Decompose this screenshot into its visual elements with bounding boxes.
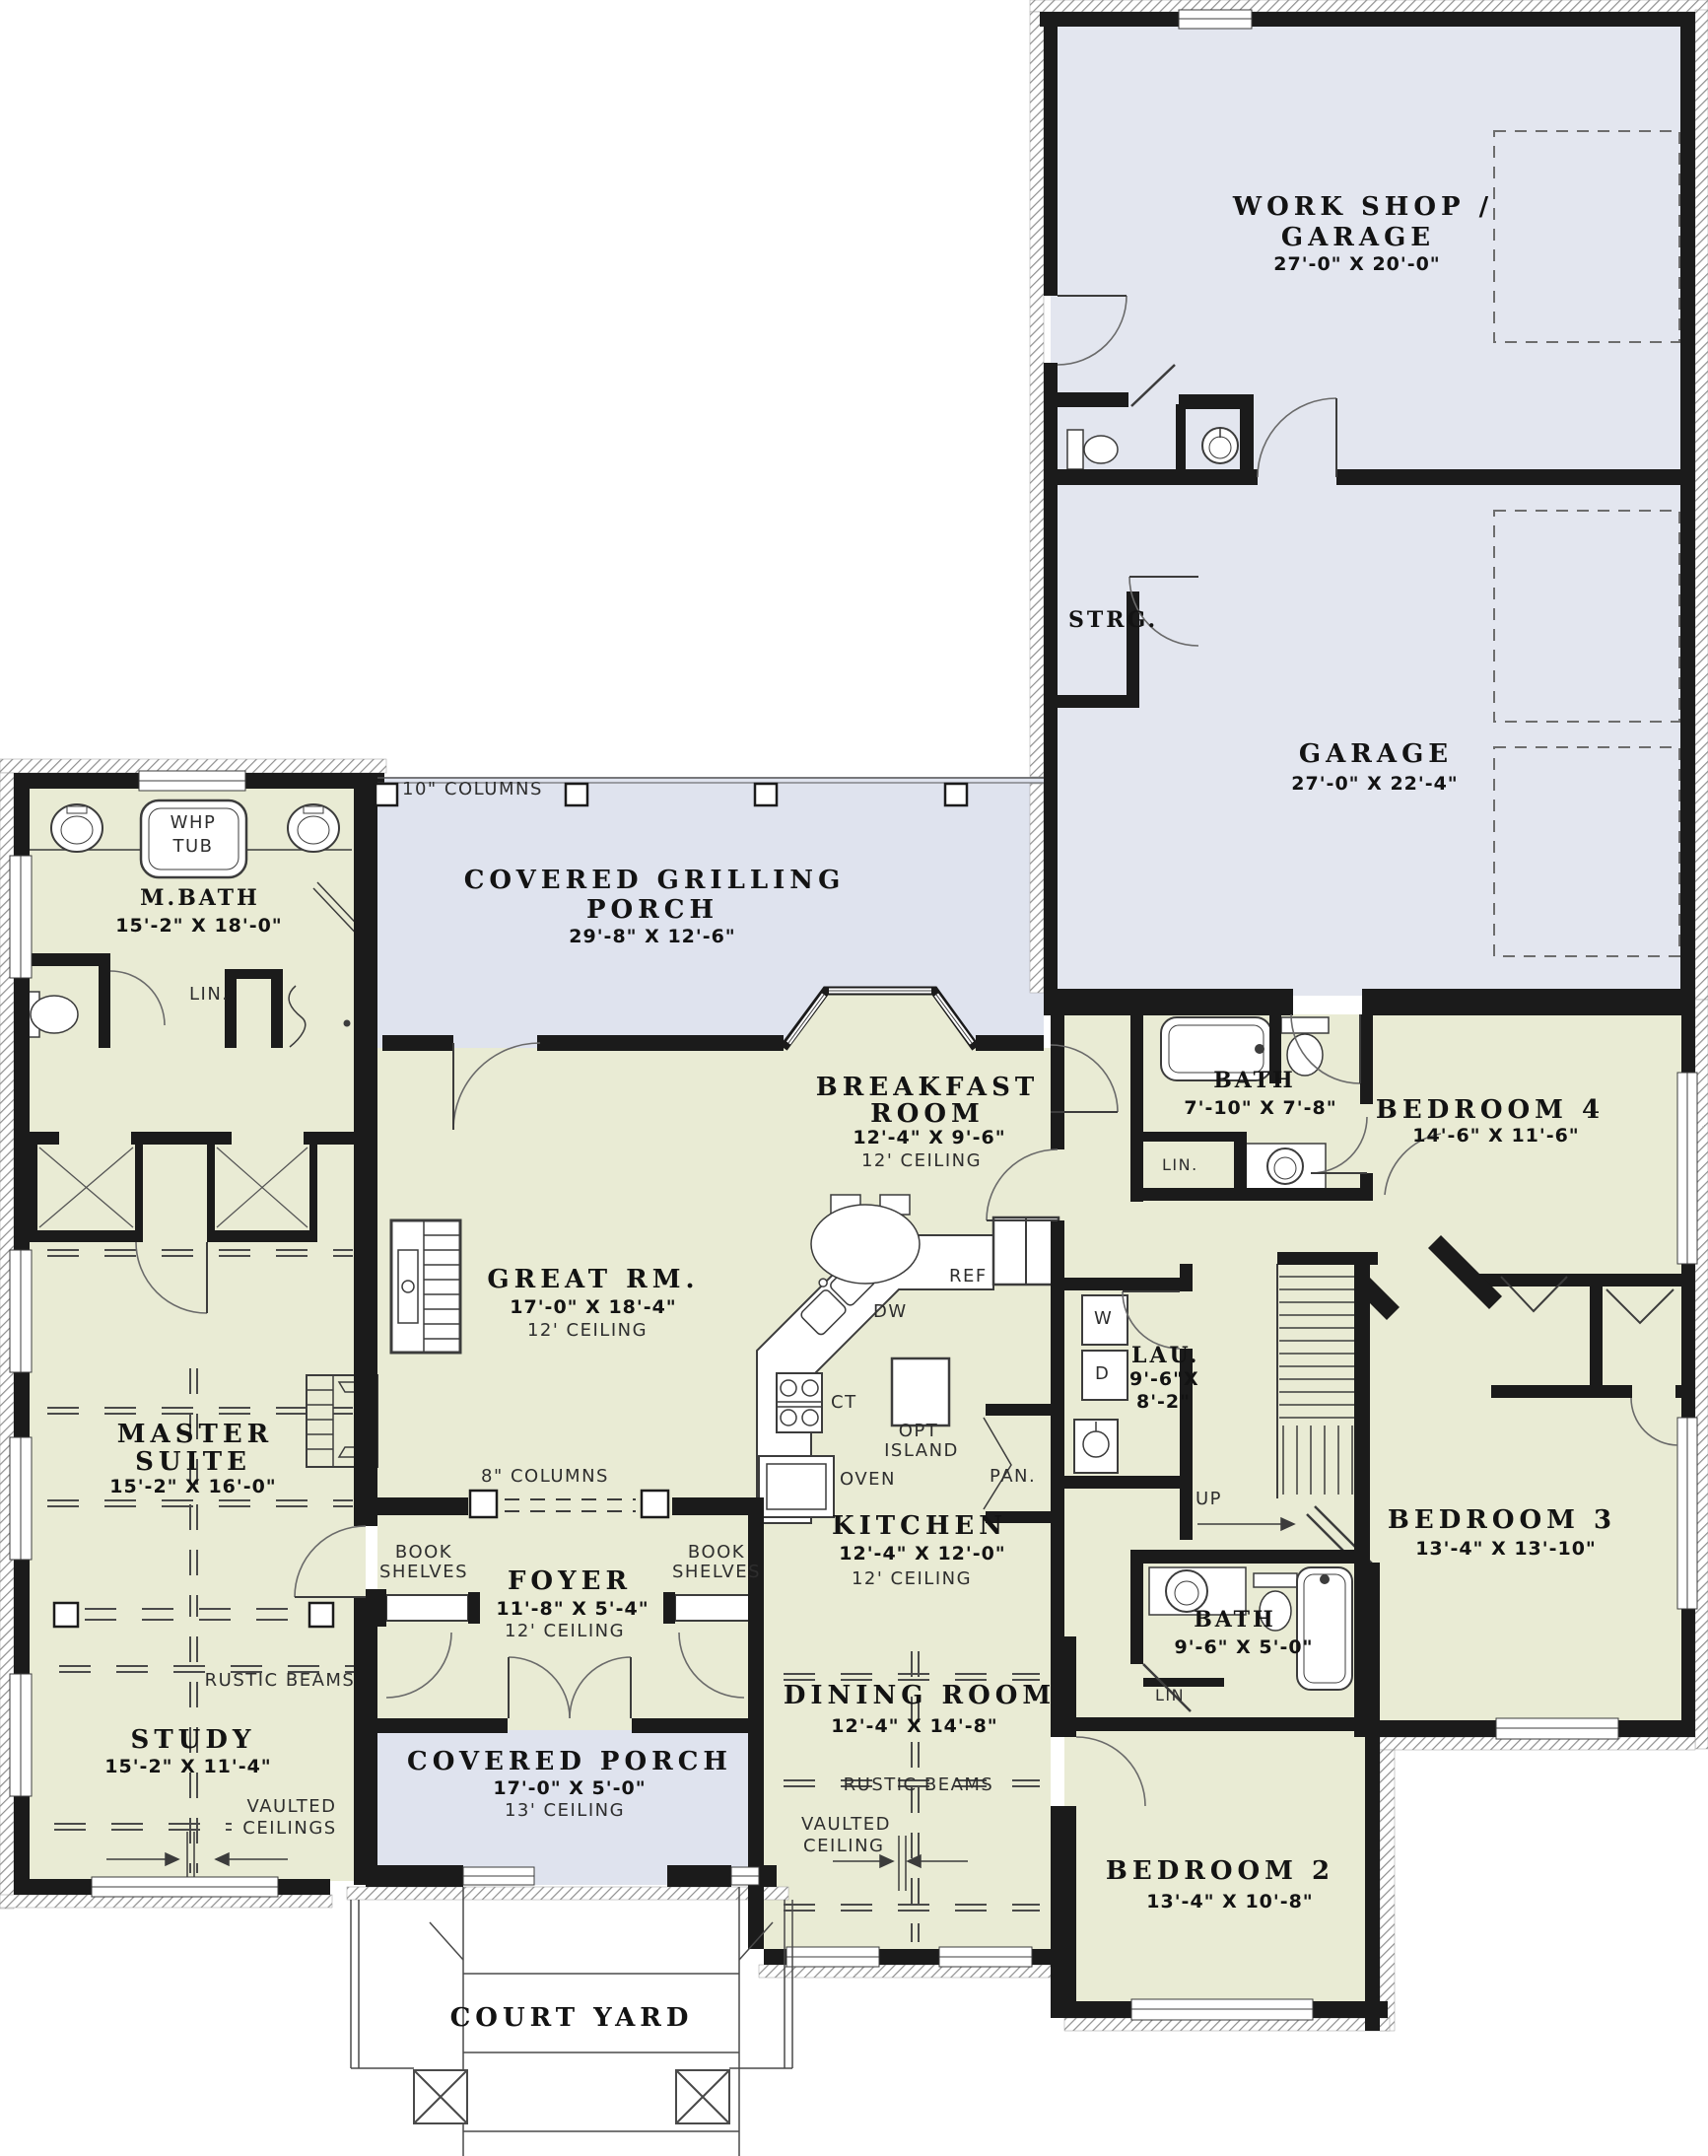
room-dims-laundry: 9'-6"X (1129, 1368, 1199, 1390)
up-note: UP (1196, 1489, 1222, 1509)
rustic-beams-note-dining: RUSTIC BEAMS (844, 1774, 994, 1795)
room-name-grilling-porch-2: PORCH (586, 895, 718, 925)
sink-icon (288, 804, 339, 852)
room-ceiling-foyer: 12' CEILING (505, 1621, 625, 1641)
room-name-study: STUDY (131, 1725, 256, 1755)
pantry-note: PAN. (990, 1466, 1036, 1487)
dw-note: DW (873, 1301, 908, 1322)
room-dims-grilling-porch: 29'-8" X 12'-6" (569, 926, 735, 947)
ref-note: REF (949, 1266, 988, 1287)
room-dims-mbath: 15'-2" X 18'-0" (115, 915, 282, 937)
room-dims-workshop: 27'-0" X 20'-0" (1273, 253, 1440, 275)
room-name-mbath: M.BATH (140, 885, 260, 911)
room-name-foyer: FOYER (508, 1566, 632, 1596)
vaulted-note-study-2: CEILINGS (242, 1818, 336, 1839)
whp-tub-note-2: TUB (172, 836, 213, 857)
vanity-sink (1245, 1144, 1326, 1189)
room-ceiling-porch: 13' CEILING (505, 1800, 625, 1821)
room-dims-garage: 27'-0" X 22'-4" (1291, 773, 1458, 795)
room-name-garage: GARAGE (1299, 739, 1453, 769)
room-name-bath4: BATH (1213, 1068, 1296, 1093)
room-ceiling-great: 12' CEILING (527, 1320, 648, 1341)
ct-note: CT (831, 1392, 857, 1413)
room-dims-bed4: 14'-6" X 11'-6" (1412, 1125, 1579, 1147)
bookshelves-note-left-2: SHELVES (379, 1562, 468, 1582)
oven-note: OVEN (840, 1469, 896, 1490)
room-dims-foyer: 11'-8" X 5'-4" (496, 1598, 649, 1620)
room-dims-bath4: 7'-10" X 7'-8" (1184, 1097, 1336, 1119)
room-name-master: MASTER (117, 1420, 274, 1449)
room-dims-breakfast: 12'-4" X 9'-6" (853, 1127, 1005, 1148)
room-name-bed4: BEDROOM 4 (1376, 1095, 1605, 1125)
room-dims-study: 15'-2" X 11'-4" (104, 1756, 271, 1777)
room-dims-bed2: 13'-4" X 10'-8" (1146, 1891, 1313, 1913)
room-name-kitchen: KITCHEN (832, 1511, 1007, 1541)
room-dims-porch: 17'-0" X 5'-0" (493, 1777, 646, 1799)
columns-10-note: 10" COLUMNS (402, 779, 543, 800)
room-name-laundry: LAU. (1131, 1343, 1199, 1368)
room-name-breakfast-2: ROOM (870, 1099, 985, 1129)
opt-island-note: OPT (899, 1421, 939, 1441)
sink-icon (51, 804, 102, 852)
room-ceiling-kitchen: 12' CEILING (852, 1568, 972, 1589)
bookshelves-note-right: BOOK (688, 1542, 745, 1563)
linen-note-bath4: LIN. (1162, 1155, 1198, 1174)
cooktop-icon (777, 1373, 822, 1432)
room-name-workshop: WORK SHOP / (1233, 192, 1493, 222)
room-name-bed2: BEDROOM 2 (1106, 1856, 1334, 1886)
refrigerator-icon (993, 1217, 1059, 1285)
room-dims-bath23: 9'-6" X 5'-0" (1175, 1636, 1314, 1658)
room-name-courtyard: COURT YARD (450, 2003, 694, 2033)
room-dims-master: 15'-2" X 16'-0" (109, 1476, 276, 1497)
room-name-porch: COVERED PORCH (407, 1747, 732, 1776)
room-name-bed3: BEDROOM 3 (1388, 1505, 1616, 1535)
room-name-great: GREAT RM. (487, 1265, 699, 1294)
columns-8-note: 8" COLUMNS (481, 1466, 609, 1487)
room-ceiling-breakfast: 12' CEILING (861, 1150, 982, 1171)
rustic-beams-note-study: RUSTIC BEAMS (205, 1670, 356, 1691)
bathtub-icon (1297, 1567, 1352, 1690)
room-name-workshop-2: GARAGE (1281, 223, 1435, 252)
bookshelf (675, 1595, 757, 1621)
vaulted-note-dining-2: CEILING (803, 1836, 885, 1856)
linen-note-bath23: LIN (1155, 1686, 1185, 1704)
bookshelf (386, 1595, 468, 1621)
washer-note: W (1094, 1308, 1113, 1329)
room-name-dining: DINING ROOM (784, 1681, 1056, 1710)
room-dims-kitchen: 12'-4" X 12'-0" (839, 1543, 1005, 1565)
room-name-master-2: SUITE (135, 1447, 251, 1477)
room-dims-laundry-2: 8'-2" (1136, 1391, 1191, 1413)
vaulted-note-study: VAULTED (247, 1796, 337, 1817)
linen-note-mbath: LIN. (189, 984, 230, 1005)
room-name-bath23: BATH (1194, 1607, 1276, 1633)
oven-icon (759, 1456, 834, 1517)
bookshelves-note-left: BOOK (395, 1542, 452, 1563)
fireplace (391, 1220, 460, 1353)
kitchen-island (892, 1358, 949, 1426)
sink-icon (1202, 428, 1238, 463)
room-name-storage: STRG. (1068, 607, 1158, 633)
vaulted-note-dining: VAULTED (801, 1814, 891, 1835)
opt-island-note-2: ISLAND (884, 1440, 959, 1461)
room-dims-great: 17'-0" X 18'-4" (510, 1296, 676, 1318)
whp-tub-note: WHP (171, 812, 217, 833)
room-dims-bed3: 13'-4" X 13'-10" (1415, 1538, 1597, 1560)
floor-plan: WORK SHOP / GARAGE 27'-0" X 20'-0" GARAG… (0, 0, 1708, 2156)
room-name-breakfast: BREAKFAST (816, 1073, 1039, 1102)
room-dims-dining: 12'-4" X 14'-8" (831, 1715, 997, 1737)
dryer-note: D (1095, 1363, 1110, 1384)
bookshelves-note-right-2: SHELVES (672, 1562, 761, 1582)
room-name-grilling-porch: COVERED GRILLING (464, 866, 846, 895)
